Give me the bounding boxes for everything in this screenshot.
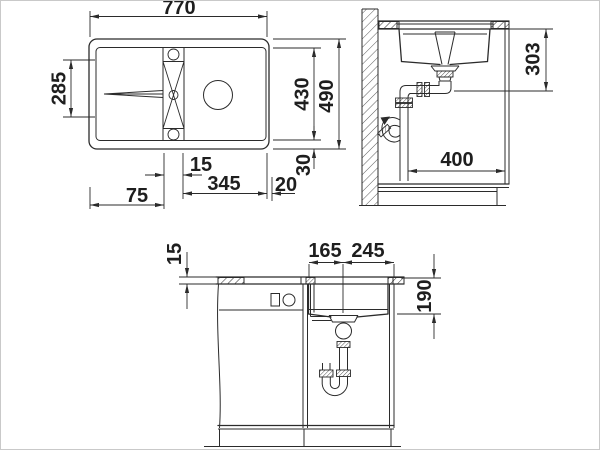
dim-430-label: 430	[292, 77, 314, 110]
left-cabinet	[218, 284, 303, 428]
dim-285-label: 285	[49, 72, 71, 105]
side-view: 303 400	[359, 9, 553, 206]
drain-circle	[204, 81, 233, 110]
countertop-section	[378, 21, 509, 29]
dim-countertop-thickness: 15	[164, 243, 187, 309]
countertop-front	[179, 277, 404, 284]
dim-bowl-depth: 190	[397, 254, 441, 339]
cabinet-side	[359, 21, 509, 206]
sink-cabinet	[204, 284, 401, 447]
top-view: 770 285 430 490 30	[49, 1, 347, 209]
dim-20-label: 20	[275, 174, 297, 196]
drain-nut	[336, 323, 352, 339]
dim-edge-margin: 30	[293, 126, 315, 176]
dim-490-label: 490	[316, 79, 338, 112]
socket-icon	[283, 294, 295, 306]
installation-drawing: 770 285 430 490 30	[1, 1, 599, 449]
dim-left-margin: 75	[90, 185, 164, 209]
drawing-canvas: 770 285 430 490 30	[0, 0, 600, 450]
flow-arrow	[381, 117, 391, 126]
dim-400-label: 400	[440, 149, 473, 171]
dim-770-label: 770	[162, 1, 195, 19]
faucet-hole-bottom	[168, 129, 179, 140]
dim-303-label: 303	[523, 42, 545, 75]
tap-ledge	[163, 49, 184, 140]
dim-245-label: 245	[351, 240, 384, 262]
drain-funnel-side	[431, 32, 459, 81]
drainboard-groove	[104, 91, 163, 98]
front-view: 15	[164, 240, 441, 447]
dim-drainboard-length: 285	[49, 60, 96, 117]
dim-15-front-label: 15	[164, 243, 186, 265]
dim-tap-offset: 15	[145, 153, 212, 209]
dim-75-label: 75	[126, 185, 148, 207]
dim-right-margin: 20	[272, 174, 297, 201]
overflow-inlet	[306, 278, 315, 285]
faucet-hole-top	[168, 49, 179, 60]
dim-345-label: 345	[207, 173, 240, 195]
switch-icon	[271, 294, 280, 307]
wall-section	[362, 9, 378, 206]
dim-190-label: 190	[414, 279, 436, 312]
dim-30-label: 30	[293, 154, 315, 176]
dim-install-depth: 303	[454, 29, 553, 91]
dim-165-label: 165	[308, 240, 341, 262]
siphon-front	[320, 316, 359, 396]
dim-cabinet-depth: 400	[408, 149, 505, 171]
dim-overall-width: 770	[90, 1, 267, 37]
bowl-section-side	[397, 21, 493, 65]
